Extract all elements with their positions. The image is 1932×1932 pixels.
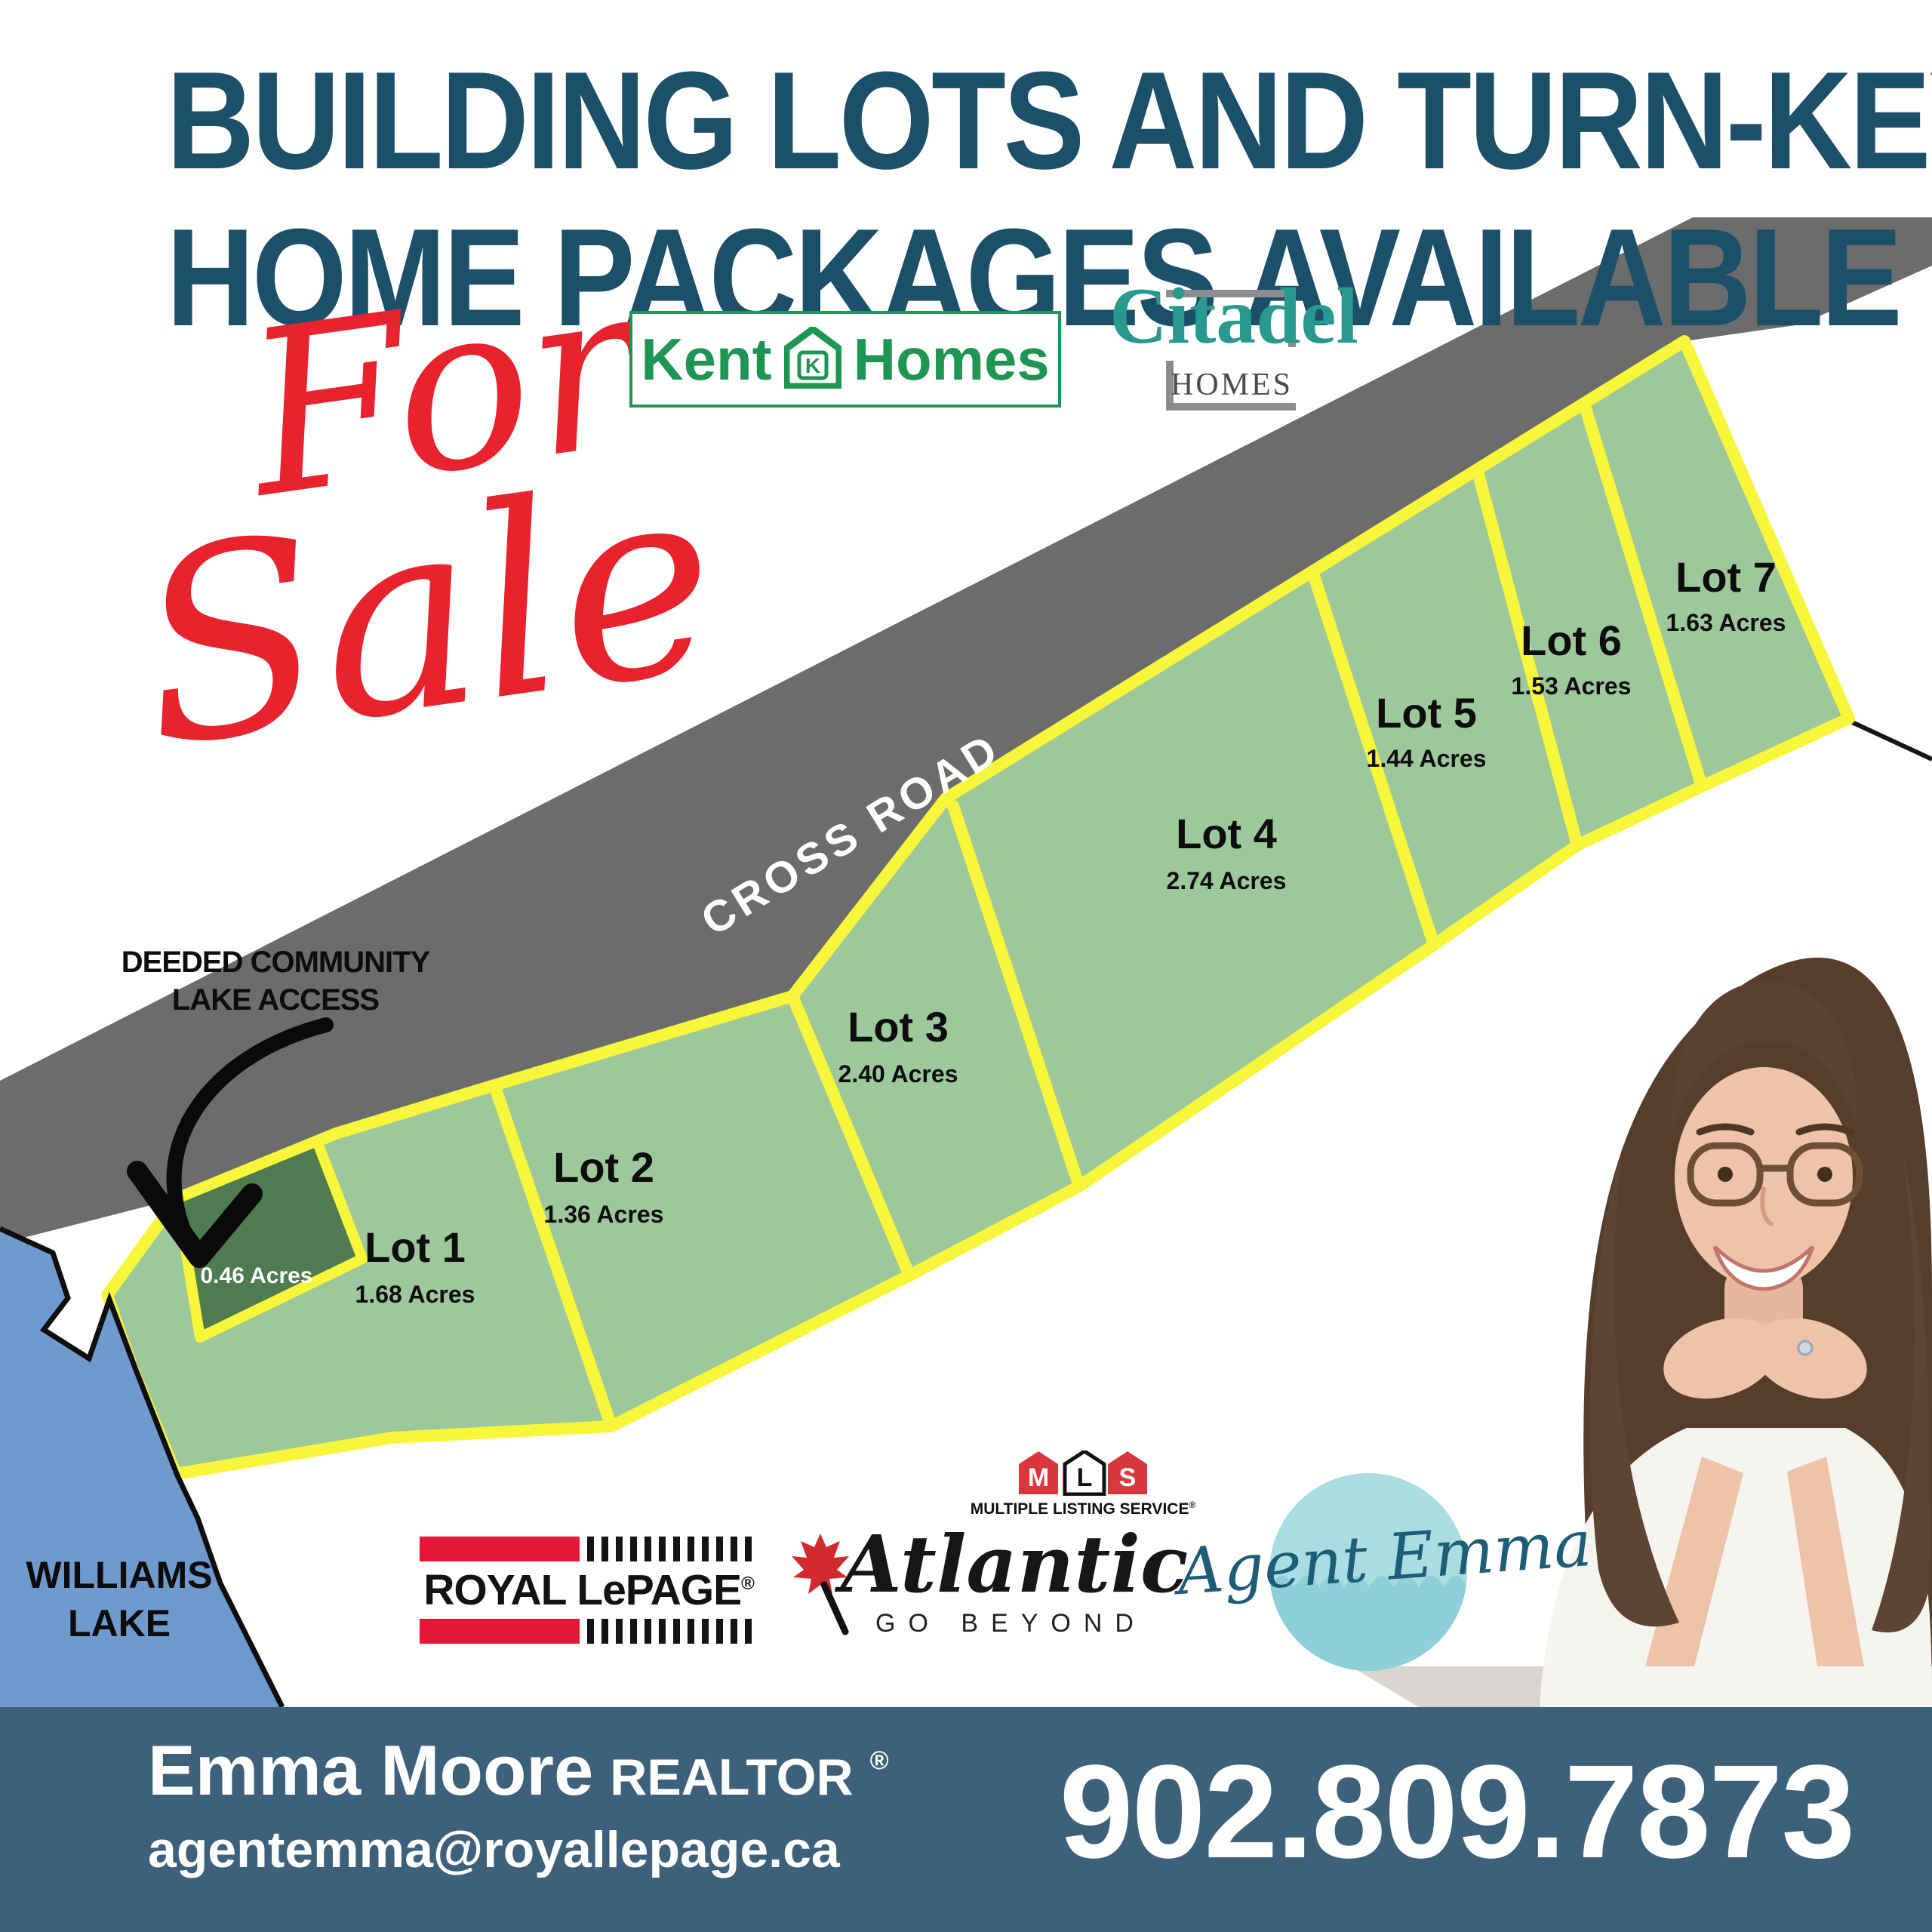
lot-1-area: 1.68 Acres xyxy=(355,1281,475,1308)
lot-5-area: 1.44 Acres xyxy=(1367,745,1487,772)
lot-1-name: Lot 1 xyxy=(365,1223,466,1271)
kent-homes-word2: Homes xyxy=(854,325,1050,394)
title-line1: BUILDING LOTS AND TURN-KEY xyxy=(166,42,1720,199)
lot-7-area: 1.63 Acres xyxy=(1666,609,1786,636)
lake-access-note: DEEDED COMMUNITY LAKE ACCESS xyxy=(53,943,498,1019)
agent-emma-logo: Agent Emma xyxy=(1177,1467,1570,1694)
flyer: CROSS ROAD Lot 1 1.68 Acres Lot 2 1.36 A… xyxy=(0,0,1932,1932)
access-lot-area-label: 0.46 Acres xyxy=(200,1263,312,1288)
citadel-homes-logo: Citadel HOMES xyxy=(1091,266,1377,432)
lot-6-name: Lot 6 xyxy=(1521,617,1622,664)
lot-5-name: Lot 5 xyxy=(1376,689,1477,737)
mls-caption: MULTIPLE LISTING SERVICE® xyxy=(966,1500,1200,1518)
mls-houses-icon: M L S xyxy=(1019,1451,1147,1496)
stripe-pattern xyxy=(587,1619,758,1644)
lot-2-area: 1.36 Acres xyxy=(544,1201,664,1228)
lake-access-note-line1: DEEDED COMMUNITY xyxy=(53,943,498,981)
lot-7-name: Lot 7 xyxy=(1675,553,1777,601)
agent-phone: 902.809.7873 xyxy=(981,1736,1932,1888)
lot-4-area: 2.74 Acres xyxy=(1167,867,1287,894)
svg-text:L: L xyxy=(1077,1463,1093,1492)
agent-name: Emma Moore xyxy=(148,1730,593,1811)
lot-2-name: Lot 2 xyxy=(553,1143,654,1191)
atlantic-tagline: GO BEYOND xyxy=(875,1609,1177,1638)
royal-lepage-name: ROYAL LePAGE® xyxy=(420,1565,758,1615)
lot-6-area: 1.53 Acres xyxy=(1512,672,1632,700)
agent-email: agentemma@royallepage.ca xyxy=(148,1820,840,1879)
stripe-pattern xyxy=(587,1537,758,1561)
svg-text:M: M xyxy=(1028,1463,1049,1492)
svg-text:S: S xyxy=(1119,1463,1137,1492)
citadel-subtitle: HOMES xyxy=(1163,367,1300,403)
mls-logo: M L S MULTIPLE LISTING SERVICE® xyxy=(966,1451,1200,1518)
royal-lepage-logo: ROYAL LePAGE® xyxy=(420,1537,758,1644)
lake-name-line1: WILLIAMS xyxy=(26,1554,212,1596)
royal-lepage-bottom-band xyxy=(420,1619,758,1644)
lot-3-area: 2.40 Acres xyxy=(838,1060,958,1088)
svg-text:K: K xyxy=(805,354,820,377)
agent-registered: ® xyxy=(870,1746,889,1776)
red-bar xyxy=(420,1619,580,1644)
kent-homes-logo: Kent K Homes xyxy=(629,311,1061,408)
lot-3-name: Lot 3 xyxy=(848,1003,949,1051)
lake-access-note-line2: LAKE ACCESS xyxy=(53,981,498,1019)
for-sale-word2: Sale xyxy=(124,446,731,786)
atlantic-logo: Atlantic GO BEYOND xyxy=(785,1521,1177,1638)
lake-name-line2: LAKE xyxy=(68,1602,171,1644)
maple-leaf-icon xyxy=(785,1532,860,1638)
agent-name-line: Emma Moore REALTOR ® xyxy=(148,1730,889,1811)
atlantic-name: Atlantic xyxy=(841,1521,1177,1607)
royal-lepage-registered: ® xyxy=(741,1574,754,1594)
kent-homes-house-icon: K xyxy=(784,327,841,392)
citadel-name: Citadel xyxy=(1091,276,1377,356)
agent-emma-script: Agent Emma xyxy=(1175,1508,1572,1609)
agent-title: REALTOR xyxy=(610,1748,853,1807)
footer-bar: Emma Moore REALTOR ® agentemma@royallepa… xyxy=(0,1707,1932,1932)
royal-lepage-top-band xyxy=(420,1537,758,1561)
red-bar xyxy=(420,1537,580,1561)
kent-homes-word1: Kent xyxy=(641,325,771,394)
boundary-line xyxy=(1850,721,1932,759)
lot-4-name: Lot 4 xyxy=(1176,810,1277,857)
